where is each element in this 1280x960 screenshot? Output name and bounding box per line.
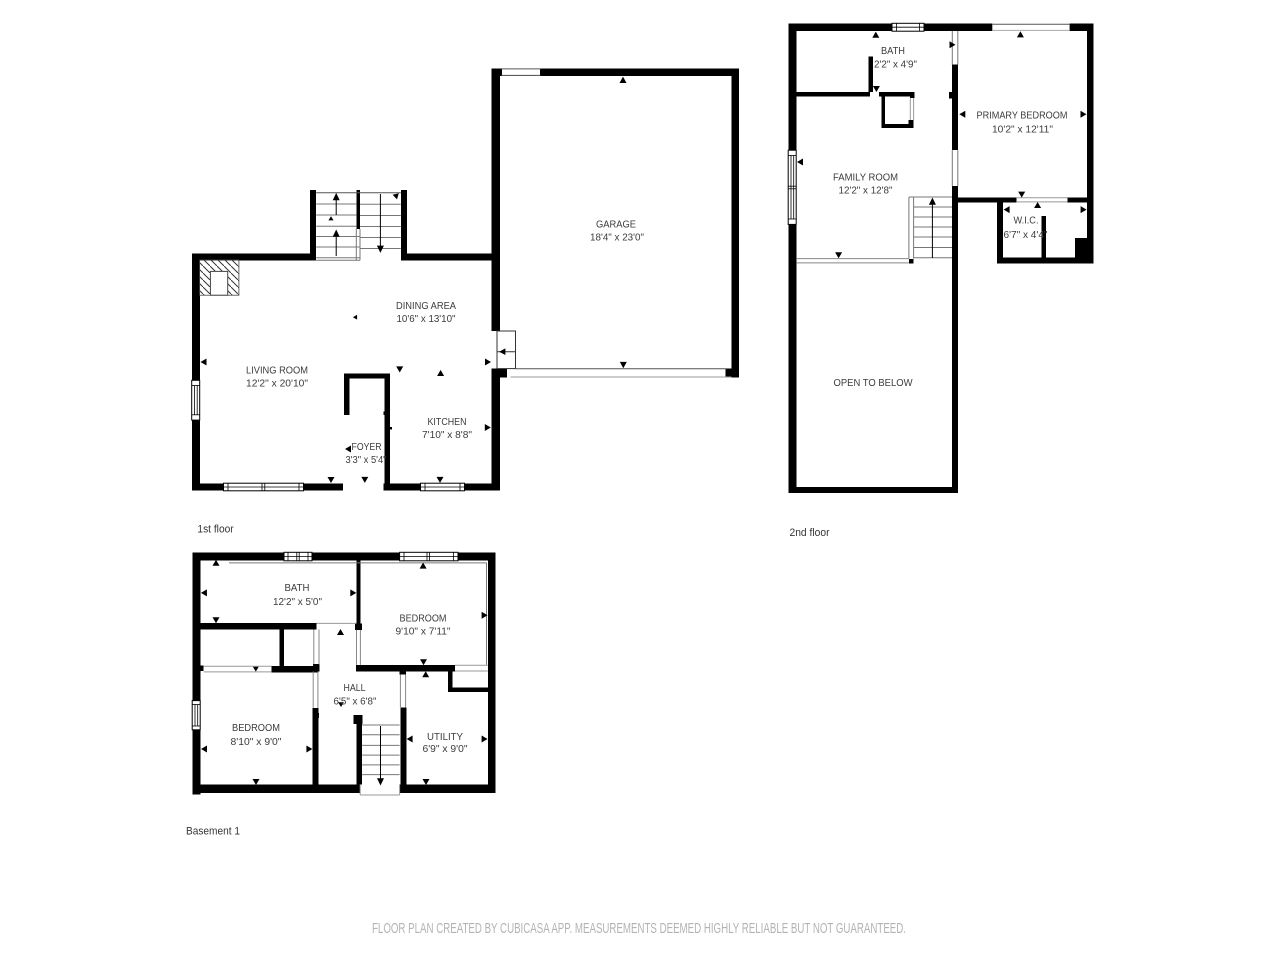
svg-text:1st floor: 1st floor xyxy=(197,524,234,536)
svg-text:DINING AREA: DINING AREA xyxy=(396,301,456,312)
svg-text:12'2" x 12'8": 12'2" x 12'8" xyxy=(839,185,893,196)
svg-text:FAMILY ROOM: FAMILY ROOM xyxy=(833,172,898,183)
svg-text:UTILITY: UTILITY xyxy=(427,732,463,743)
svg-text:6'7" x 4'4": 6'7" x 4'4" xyxy=(1004,230,1048,241)
svg-text:HALL: HALL xyxy=(344,683,366,694)
svg-text:OPEN TO BELOW: OPEN TO BELOW xyxy=(834,378,914,389)
svg-text:8'10" x 9'0": 8'10" x 9'0" xyxy=(231,737,282,748)
svg-text:W.I.C.: W.I.C. xyxy=(1014,216,1039,227)
svg-text:BEDROOM: BEDROOM xyxy=(232,723,280,734)
svg-text:2nd floor: 2nd floor xyxy=(790,527,830,539)
svg-text:18'4" x 23'0": 18'4" x 23'0" xyxy=(590,233,644,244)
svg-text:BEDROOM: BEDROOM xyxy=(400,613,447,624)
svg-text:BATH: BATH xyxy=(881,46,905,57)
svg-text:6'5" x 6'8": 6'5" x 6'8" xyxy=(334,697,377,708)
svg-text:12'2" x 20'10": 12'2" x 20'10" xyxy=(246,379,308,390)
svg-text:Basement 1: Basement 1 xyxy=(186,826,240,838)
svg-text:12'2" x 5'0": 12'2" x 5'0" xyxy=(273,597,322,608)
svg-text:KITCHEN: KITCHEN xyxy=(428,417,467,428)
svg-text:GARAGE: GARAGE xyxy=(596,220,636,231)
svg-text:FLOOR PLAN CREATED BY CUBICASA: FLOOR PLAN CREATED BY CUBICASA APP. MEAS… xyxy=(372,920,906,937)
svg-text:3'3" x 5'4": 3'3" x 5'4" xyxy=(346,455,387,466)
svg-text:2'2" x 4'9": 2'2" x 4'9" xyxy=(874,60,917,71)
svg-text:BATH: BATH xyxy=(285,583,310,594)
svg-text:10'2" x 12'11": 10'2" x 12'11" xyxy=(992,125,1053,136)
svg-text:FOYER: FOYER xyxy=(352,442,382,453)
svg-text:6'9" x 9'0": 6'9" x 9'0" xyxy=(423,744,468,755)
svg-text:LIVING ROOM: LIVING ROOM xyxy=(246,366,308,377)
svg-text:7'10" x 8'8": 7'10" x 8'8" xyxy=(422,430,472,441)
svg-text:PRIMARY BEDROOM: PRIMARY BEDROOM xyxy=(977,111,1068,122)
svg-text:9'10" x 7'11": 9'10" x 7'11" xyxy=(396,626,451,637)
svg-text:10'6" x 13'10": 10'6" x 13'10" xyxy=(397,314,456,325)
